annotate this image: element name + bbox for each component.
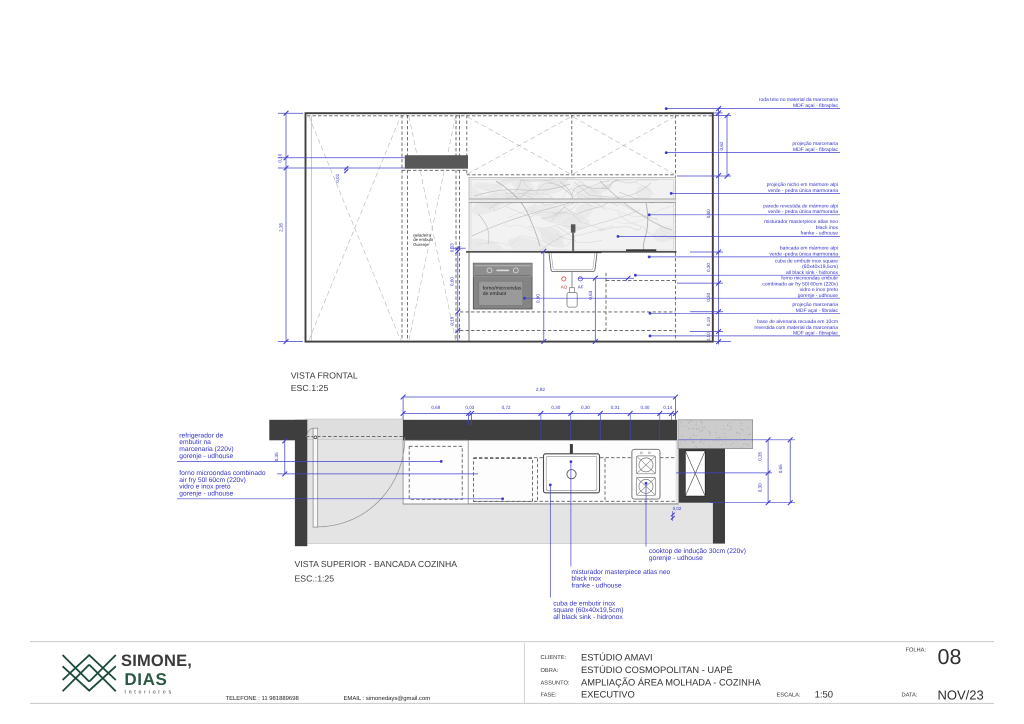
svg-text:gorenje - udhouse: gorenje - udhouse (649, 555, 703, 562)
svg-text:0,30: 0,30 (758, 483, 763, 492)
svg-text:0,10: 0,10 (278, 153, 283, 162)
svg-text:ESC.:1:25: ESC.:1:25 (295, 573, 335, 583)
svg-text:0,30: 0,30 (706, 263, 711, 272)
svg-text:gorenje - udhouse: gorenje - udhouse (179, 453, 233, 460)
svg-text:1:50: 1:50 (815, 689, 834, 700)
svg-text:0,03: 0,03 (449, 243, 454, 252)
svg-text:franke - udhouse: franke - udhouse (800, 231, 838, 237)
svg-text:0,68: 0,68 (431, 405, 440, 410)
svg-text:VISTA SUPERIOR - BANCADA COZIN: VISTA SUPERIOR - BANCADA COZINHA (295, 559, 458, 569)
svg-text:DATA:: DATA: (902, 693, 918, 699)
svg-text:SIMONE,: SIMONE, (121, 652, 192, 670)
svg-text:ESTÚDIO COSMOPOLITAN - UAPÉ: ESTÚDIO COSMOPOLITAN - UAPÉ (581, 664, 733, 675)
svg-text:Interiores: Interiores (124, 690, 173, 696)
svg-text:EMAIL : simonedays@gmail.com: EMAIL : simonedays@gmail.com (344, 695, 431, 702)
svg-text:ESCALA:: ESCALA: (777, 693, 801, 699)
svg-text:0,72: 0,72 (502, 405, 511, 410)
svg-text:0,65: 0,65 (778, 464, 783, 473)
svg-text:MDF açaí - fibraplac: MDF açaí - fibraplac (793, 103, 839, 109)
svg-text:MDF açaí - fibraplac: MDF açaí - fibraplac (793, 147, 839, 153)
svg-text:franke - udhouse: franke - udhouse (571, 583, 621, 590)
svg-text:0,19: 0,19 (449, 316, 454, 325)
svg-text:0,03: 0,03 (465, 405, 474, 410)
svg-text:0,35: 0,35 (274, 452, 279, 461)
svg-text:EXECUTIVO: EXECUTIVO (581, 689, 635, 699)
svg-text:de embutir: de embutir (483, 291, 507, 297)
svg-text:AQ: AQ (561, 285, 568, 290)
svg-text:0,80: 0,80 (706, 209, 711, 218)
svg-text:verde - pedra única marmoraria: verde - pedra única marmoraria (768, 209, 838, 215)
svg-text:0,14: 0,14 (663, 405, 672, 410)
svg-text:AF: AF (578, 285, 584, 290)
svg-text:0,10: 0,10 (706, 332, 711, 341)
svg-text:gorenje - udhouse: gorenje - udhouse (179, 491, 233, 498)
svg-text:verde - pedra única marmoraria: verde - pedra única marmoraria (768, 188, 838, 194)
svg-text:MDF açaí - fibralac: MDF açaí - fibralac (796, 308, 839, 314)
svg-text:MDF açaí - fibraplac: MDF açaí - fibraplac (793, 331, 839, 337)
svg-text:DIAS: DIAS (124, 670, 167, 689)
svg-text:FASE:: FASE: (541, 693, 558, 699)
svg-text:0,62: 0,62 (719, 141, 724, 150)
svg-text:0,02: 0,02 (335, 173, 340, 182)
svg-text:0,60: 0,60 (449, 277, 454, 286)
svg-text:TELEFONE : 11 981889698: TELEFONE : 11 981889698 (226, 695, 300, 702)
svg-text:VISTA FRONTAL: VISTA FRONTAL (291, 370, 358, 380)
svg-text:0,30: 0,30 (706, 292, 711, 301)
svg-text:0,30: 0,30 (641, 405, 650, 410)
svg-text:all black sink - hidronox: all black sink - hidronox (553, 614, 623, 621)
svg-text:verde -pedra única marmoraria: verde -pedra única marmoraria (769, 251, 838, 257)
svg-text:FOLHA:: FOLHA: (906, 648, 927, 654)
svg-text:0,31: 0,31 (611, 405, 620, 410)
svg-text:2,35: 2,35 (279, 222, 284, 231)
svg-text:CLIENTE:: CLIENTE: (541, 655, 567, 661)
svg-text:AMPLIAÇÃO ÁREA MOLHADA - COZIN: AMPLIAÇÃO ÁREA MOLHADA - COZINHA (581, 676, 762, 687)
svg-text:0,30: 0,30 (551, 405, 560, 410)
svg-text:Gorenje: Gorenje (413, 242, 429, 247)
svg-text:ESC.1:25: ESC.1:25 (291, 383, 329, 393)
svg-text:OBRA:: OBRA: (541, 668, 559, 674)
svg-text:0,30: 0,30 (581, 405, 590, 410)
svg-text:0,35: 0,35 (758, 451, 763, 460)
svg-text:gorenje - udhouse: gorenje - udhouse (798, 293, 839, 299)
svg-text:NOV/23: NOV/23 (938, 688, 984, 703)
svg-text:0,19: 0,19 (706, 317, 711, 326)
svg-text:08: 08 (938, 645, 962, 669)
svg-text:ASSUNTO:: ASSUNTO: (541, 681, 570, 687)
svg-text:ESTÚDIO AMAVI: ESTÚDIO AMAVI (581, 651, 653, 662)
svg-text:2,82: 2,82 (536, 387, 546, 392)
svg-text:0,02: 0,02 (673, 506, 682, 511)
